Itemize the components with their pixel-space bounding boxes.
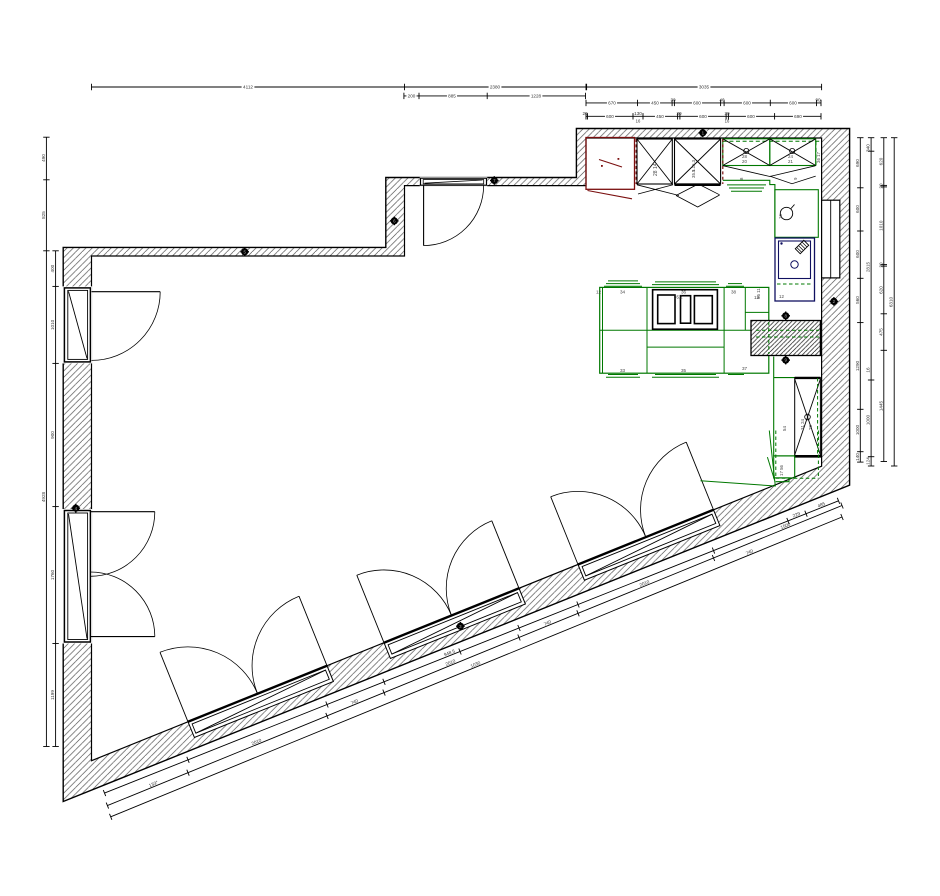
- svg-text:475: 475: [878, 328, 883, 336]
- svg-text:28 14: 28 14: [653, 163, 659, 176]
- svg-text:2815: 2815: [866, 261, 871, 272]
- svg-text:885: 885: [448, 94, 456, 99]
- svg-text:490: 490: [41, 154, 46, 162]
- svg-text:16: 16: [866, 367, 871, 373]
- svg-text:600: 600: [743, 101, 751, 106]
- svg-text:13: 13: [754, 295, 760, 300]
- svg-text:1760: 1760: [50, 569, 55, 580]
- svg-text:30: 30: [676, 111, 682, 116]
- svg-text:124: 124: [866, 457, 871, 465]
- svg-text:600: 600: [693, 101, 701, 106]
- svg-text:5.3: 5.3: [691, 159, 696, 166]
- svg-text:16: 16: [636, 119, 641, 124]
- svg-text:33: 33: [620, 368, 626, 373]
- svg-text:340: 340: [866, 144, 871, 152]
- svg-text:1010: 1010: [50, 319, 55, 330]
- svg-text:600: 600: [855, 250, 860, 258]
- svg-text:17 56: 17 56: [779, 464, 784, 476]
- svg-text:3035: 3035: [699, 85, 710, 90]
- svg-text:20: 20: [742, 159, 747, 164]
- svg-text:140: 140: [855, 453, 860, 461]
- svg-text:28: 28: [808, 425, 813, 430]
- svg-text:20: 20: [878, 183, 883, 189]
- svg-text:600: 600: [855, 205, 860, 213]
- svg-text:4112: 4112: [243, 85, 253, 90]
- svg-text:1000: 1000: [855, 424, 860, 435]
- svg-text:690: 690: [855, 159, 860, 167]
- svg-text:16: 16: [778, 214, 783, 219]
- svg-text:600: 600: [606, 114, 614, 119]
- svg-text:36 17: 36 17: [816, 151, 821, 163]
- svg-text:1445: 1445: [878, 400, 883, 411]
- svg-text:1199: 1199: [50, 690, 55, 700]
- svg-text:20: 20: [582, 111, 588, 116]
- svg-text:1010: 1010: [878, 220, 883, 231]
- svg-text:600: 600: [789, 101, 797, 106]
- svg-text:30: 30: [724, 111, 730, 116]
- svg-text:450: 450: [651, 101, 659, 106]
- svg-text:12: 12: [779, 294, 784, 299]
- svg-text:670: 670: [608, 101, 616, 106]
- svg-text:600: 600: [699, 114, 707, 119]
- svg-text:600: 600: [747, 114, 755, 119]
- svg-text:35.2: 35.2: [674, 295, 683, 300]
- svg-text:200: 200: [408, 94, 416, 99]
- svg-text:4928: 4928: [41, 491, 46, 502]
- svg-text:400: 400: [50, 264, 55, 272]
- svg-text:6310: 6310: [889, 296, 894, 307]
- svg-text:34: 34: [620, 290, 626, 295]
- svg-text:900: 900: [50, 431, 55, 439]
- svg-text:620: 620: [878, 286, 883, 294]
- svg-text:21: 21: [788, 159, 793, 164]
- svg-text:16: 16: [725, 119, 730, 124]
- svg-text:620: 620: [878, 157, 883, 165]
- svg-text:690: 690: [794, 114, 802, 119]
- svg-text:30: 30: [670, 98, 676, 103]
- svg-text:2380: 2380: [490, 85, 501, 90]
- svg-text:130: 130: [634, 111, 642, 116]
- svg-text:560: 560: [855, 296, 860, 304]
- svg-text:12: 12: [596, 290, 602, 295]
- svg-text:35: 35: [681, 368, 687, 373]
- svg-text:38: 38: [731, 290, 737, 295]
- svg-text:1228: 1228: [531, 94, 542, 99]
- svg-text:54: 54: [782, 426, 787, 431]
- svg-text:450: 450: [656, 114, 664, 119]
- svg-text:1000: 1000: [866, 414, 871, 425]
- svg-text:825: 825: [41, 211, 46, 219]
- svg-text:46: 46: [719, 98, 725, 103]
- svg-text:20: 20: [878, 262, 883, 268]
- svg-text:37: 37: [742, 366, 748, 371]
- svg-text:1290: 1290: [855, 360, 860, 371]
- svg-text:31 24: 31 24: [800, 418, 805, 430]
- svg-text:90: 90: [815, 98, 821, 103]
